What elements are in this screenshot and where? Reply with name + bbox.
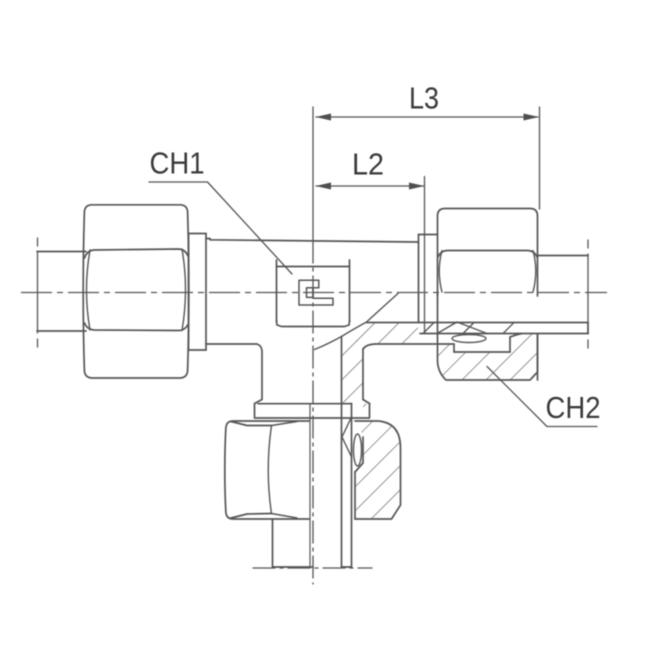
svg-text:L3: L3 bbox=[409, 81, 439, 116]
svg-text:L2: L2 bbox=[352, 147, 384, 182]
svg-text:CH1: CH1 bbox=[150, 146, 205, 181]
svg-text:CH2: CH2 bbox=[546, 390, 601, 425]
